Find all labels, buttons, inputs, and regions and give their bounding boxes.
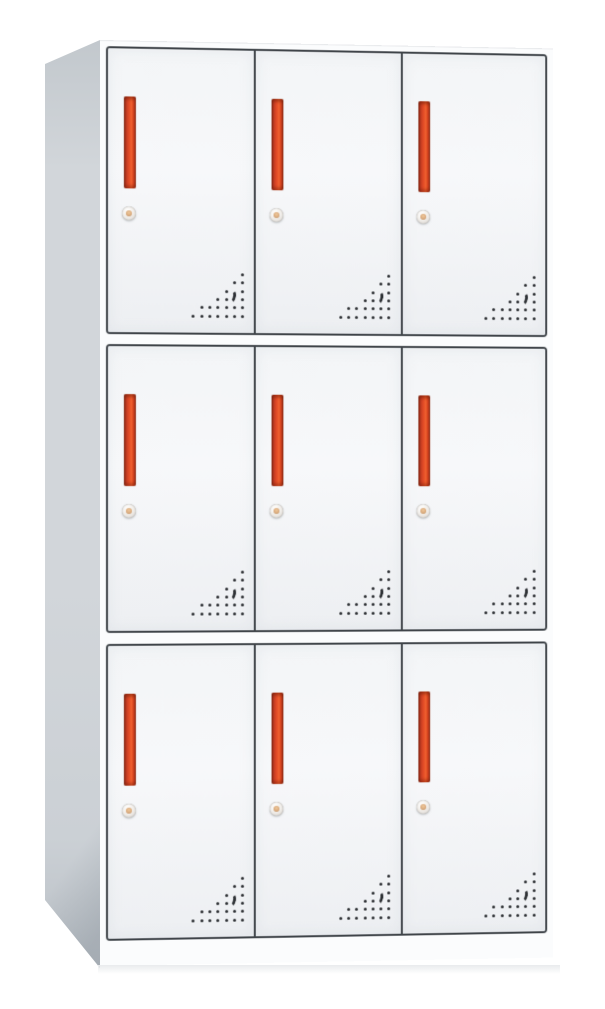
vent-dot [525,881,528,884]
vent-holes-icon [192,273,245,320]
vent-dot [508,914,511,917]
locker-door [254,51,400,334]
door-row [106,46,547,337]
vent-dot [241,579,244,582]
vent-dot [533,881,536,884]
vent-holes-icon [192,571,245,618]
vent-dot [388,595,391,598]
vent-dot [233,281,236,284]
floor-shadow [98,965,560,974]
vent-dot [200,306,203,309]
vent-dot [388,611,391,614]
vent-dot [525,317,528,320]
vent-crescent-icon [517,585,529,600]
door-lock-icon [122,206,136,220]
door-lock-icon [270,802,284,816]
vent-dot [500,308,503,311]
vent-dot [233,315,236,318]
vent-crescent-icon [225,288,237,304]
vent-dot [388,875,391,878]
vent-dot [380,916,383,919]
vent-dot [241,315,244,318]
vent-dot [388,299,391,302]
vent-dot [380,883,383,886]
door-lock-icon [122,804,136,818]
vent-dot [363,595,366,598]
vent-dot [225,306,228,309]
vent-dot [525,905,528,908]
vent-dot [533,276,536,279]
vent-dot [371,316,374,319]
vent-dot [516,611,519,614]
vent-dot [241,595,244,598]
cabinet-side-panel [45,40,100,968]
locker-door [108,48,254,333]
vent-dot [533,905,536,908]
door-handle-icon [124,96,136,188]
vent-dot [380,603,383,606]
vent-dot [492,611,495,614]
vent-dot [380,283,383,286]
vent-crescent-icon [225,586,237,601]
vent-dot [241,273,244,276]
vent-holes-icon [339,875,392,922]
vent-dot [217,314,220,317]
locker-product-photo [0,0,605,1009]
vent-holes-icon [339,570,392,617]
vent-dot [233,579,236,582]
locker-door [254,347,400,630]
door-handle-icon [272,693,284,784]
vent-dot [533,292,536,295]
vent-dot [492,603,495,606]
vent-dot [525,578,528,581]
vent-dot [192,612,195,615]
vent-dot [380,316,383,319]
door-handle-icon [418,101,430,192]
vent-dot [533,913,536,916]
vent-dot [241,571,244,574]
vent-dot [516,905,519,908]
vent-dot [500,906,503,909]
vent-dot [388,587,391,590]
vent-dot [225,910,228,913]
vent-dot [533,586,536,589]
vent-holes-icon [484,570,536,616]
vent-dot [533,578,536,581]
door-lock-icon [416,210,430,224]
cabinet-front [100,40,553,966]
vent-dot [347,908,350,911]
vent-dot [233,612,236,615]
vent-dot [217,298,220,301]
vent-dot [200,314,203,317]
vent-dot [241,290,244,293]
vent-dot [533,309,536,312]
vent-dot [484,914,487,917]
vent-dot [508,300,511,303]
vent-dot [355,916,358,919]
vent-dot [388,275,391,278]
vent-dot [355,315,358,318]
vent-dot [508,317,511,320]
vent-dot [525,611,528,614]
vent-dot [533,872,536,875]
vent-dot [233,306,236,309]
vent-dot [363,611,366,614]
vent-dot [241,885,244,888]
vent-dot [363,916,366,919]
vent-dot [347,611,350,614]
vent-dot [200,910,203,913]
vent-dot [388,916,391,919]
vent-dot [371,908,374,911]
vent-dot [363,316,366,319]
vent-dot [208,910,211,913]
vent-dot [363,900,366,903]
vent-dot [233,910,236,913]
door-lock-icon [416,504,430,518]
vent-dot [533,317,536,320]
side-panel-floor-shade [45,818,100,968]
door-lock-icon [270,504,284,518]
vent-dot [241,587,244,590]
vent-dot [484,611,487,614]
door-handle-icon [272,99,284,191]
vent-dot [347,307,350,310]
vent-dot [339,315,342,318]
vent-dot [533,284,536,287]
vent-dot [217,918,220,921]
door-lock-icon [416,800,430,814]
vent-dot [371,916,374,919]
locker-door [401,54,546,336]
vent-dot [380,307,383,310]
vent-dot [241,604,244,607]
vent-dot [500,317,503,320]
vent-dot [347,315,350,318]
vent-dot [363,603,366,606]
vent-dot [208,306,211,309]
vent-holes-icon [339,274,392,321]
vent-dot [371,611,374,614]
vent-dot [508,594,511,597]
vent-dot [200,604,203,607]
vent-dot [217,910,220,913]
door-lock-icon [122,504,136,518]
vent-dot [200,919,203,922]
door-handle-icon [418,691,430,782]
vent-dot [525,913,528,916]
door-row [106,641,547,940]
vent-dot [492,914,495,917]
vent-dot [492,316,495,319]
vent-crescent-icon [225,892,237,907]
vent-dot [363,299,366,302]
vent-dot [516,309,519,312]
vent-dot [380,611,383,614]
vent-dot [388,316,391,319]
vent-dot [217,595,220,598]
vent-dot [347,916,350,919]
vent-dot [363,908,366,911]
vent-dot [388,307,391,310]
vent-dot [388,899,391,902]
door-handle-icon [272,395,284,486]
vent-dot [492,906,495,909]
vent-dot [388,283,391,286]
vent-dot [388,578,391,581]
vent-dot [208,612,211,615]
vent-dot [241,918,244,921]
vent-dot [241,893,244,896]
vent-dot [516,913,519,916]
vent-dot [484,316,487,319]
vent-dot [233,885,236,888]
vent-crescent-icon [517,888,529,903]
vent-dot [500,603,503,606]
locker-door [401,643,546,933]
vent-dot [225,604,228,607]
vent-dot [525,602,528,605]
vent-dot [225,314,228,317]
vent-dot [225,612,228,615]
vent-dot [533,594,536,597]
vent-dot [371,603,374,606]
vent-dot [525,284,528,287]
vent-dot [192,919,195,922]
vent-dot [492,308,495,311]
vent-dot [208,314,211,317]
vent-dot [339,611,342,614]
vent-dot [363,307,366,310]
vent-dot [371,307,374,310]
vent-dot [516,602,519,605]
vent-dot [241,877,244,880]
vent-dot [508,308,511,311]
vent-holes-icon [192,877,245,925]
locker-door [401,348,546,630]
locker-door [254,644,400,936]
vent-dot [533,602,536,605]
vent-crescent-icon [517,291,529,306]
vent-dot [533,300,536,303]
vent-dot [380,578,383,581]
vent-dot [217,612,220,615]
vent-dot [233,604,236,607]
door-row [106,344,547,633]
vent-dot [217,604,220,607]
vent-dot [217,306,220,309]
vent-dot [241,306,244,309]
vent-dot [388,907,391,910]
vent-dot [533,570,536,573]
vent-dot [355,603,358,606]
locker-door [108,346,254,631]
vent-dot [355,908,358,911]
vent-dot [388,603,391,606]
vent-dot [388,291,391,294]
vent-dot [347,603,350,606]
locker-door [108,645,254,939]
vent-dot [508,603,511,606]
vent-dot [208,604,211,607]
vent-dot [500,611,503,614]
vent-dot [225,918,228,921]
vent-dot [241,902,244,905]
vent-dot [388,883,391,886]
vent-dot [533,897,536,900]
vent-dot [533,889,536,892]
vent-dot [200,612,203,615]
vent-holes-icon [484,276,536,323]
vent-dot [508,897,511,900]
vent-dot [241,282,244,285]
vent-dot [208,919,211,922]
door-handle-icon [124,694,136,786]
door-handle-icon [124,394,136,486]
vent-dot [241,612,244,615]
vent-dot [339,916,342,919]
door-lock-icon [270,208,284,222]
vent-dot [508,905,511,908]
vent-dot [533,611,536,614]
vent-holes-icon [484,872,536,919]
vent-dot [217,902,220,905]
vent-dot [355,611,358,614]
vent-dot [380,908,383,911]
vent-dot [388,570,391,573]
vent-dot [241,298,244,301]
vent-dot [388,891,391,894]
vent-dot [525,309,528,312]
vent-dot [508,611,511,614]
vent-dot [355,307,358,310]
vent-dot [192,314,195,317]
door-handle-icon [418,395,430,486]
vent-dot [233,918,236,921]
vent-dot [241,910,244,913]
vent-dot [516,317,519,320]
vent-dot [500,914,503,917]
